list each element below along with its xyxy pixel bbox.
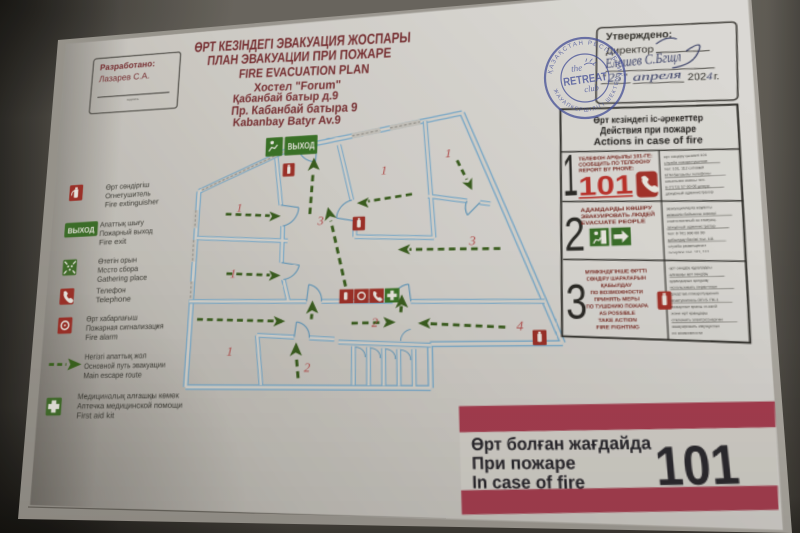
svg-text:1: 1 <box>230 268 236 281</box>
svg-text:1: 1 <box>226 346 233 360</box>
svg-text:reception тел. 111, 112: reception тел. 111, 112 <box>668 249 710 255</box>
svg-text:4: 4 <box>516 320 523 335</box>
svg-text:1: 1 <box>236 202 242 215</box>
svg-text:1: 1 <box>562 143 579 210</box>
svg-text:3: 3 <box>565 274 588 330</box>
svg-text:202: 202 <box>688 71 708 83</box>
svg-text:Fire exit: Fire exit <box>99 238 127 247</box>
svg-text:құралдарын қолдану: құралдарын қолдану <box>670 277 710 283</box>
svg-text:средства пожаротушения: средства пожаротушения <box>670 290 719 296</box>
svg-text:101: 101 <box>653 434 743 498</box>
svg-text:2: 2 <box>371 317 378 331</box>
svg-text:подпись: подпись <box>126 97 139 102</box>
svg-text:club: club <box>584 82 600 94</box>
svg-text:TAKE ACTION: TAKE ACTION <box>598 316 637 323</box>
svg-text:1: 1 <box>445 148 451 161</box>
svg-text:ВЫХОД: ВЫХОД <box>287 140 315 152</box>
svg-text:пожарные краны этажей: пожарные краны этажей <box>671 303 718 309</box>
svg-text:3: 3 <box>316 215 324 228</box>
svg-text:2: 2 <box>304 362 311 376</box>
svg-text:по возможности: по возможности <box>672 330 703 336</box>
svg-text:In case of fire: In case of fire <box>472 472 586 493</box>
svg-text:эвакуировать имущество: эвакуировать имущество <box>672 323 721 329</box>
svg-text:Телефон: Телефон <box>96 287 126 296</box>
svg-text:Медициналық алғашқы көмек: Медициналық алғашқы көмек <box>77 392 179 402</box>
svg-text:FIRE FIGHTING: FIRE FIGHTING <box>596 323 640 330</box>
svg-text:г.: г. <box>714 71 720 82</box>
svg-text:AS POSSIBLE: AS POSSIBLE <box>599 309 636 316</box>
svg-text:ВЫХОД: ВЫХОД <box>67 226 94 235</box>
svg-text:При пожаре: При пожаре <box>471 452 576 473</box>
svg-text:Негізгі апаттық жол: Негізгі апаттық жол <box>84 351 147 362</box>
svg-text:3: 3 <box>468 235 476 249</box>
svg-text:служба размещения: служба размещения <box>668 243 707 249</box>
svg-text:First aid kit: First aid kit <box>76 412 114 421</box>
svg-text:Actions in case of fire: Actions in case of fire <box>594 134 704 147</box>
svg-text:және өрт крандары: және өрт крандары <box>671 310 708 316</box>
svg-text:өрт сөндіру құралдары: өрт сөндіру құралдары <box>669 265 712 271</box>
svg-text:Fire alarm: Fire alarm <box>85 333 119 342</box>
svg-text:Аптечка медицинской помощи: Аптечка медицинской помощи <box>77 400 183 411</box>
svg-text:Өрт болған жағдайда: Өрт болған жағдайда <box>471 432 653 454</box>
svg-text:the: the <box>570 62 582 73</box>
svg-text:Telephone: Telephone <box>95 295 131 305</box>
svg-text:1: 1 <box>381 165 387 178</box>
svg-text:Main escape route: Main escape route <box>83 371 142 381</box>
